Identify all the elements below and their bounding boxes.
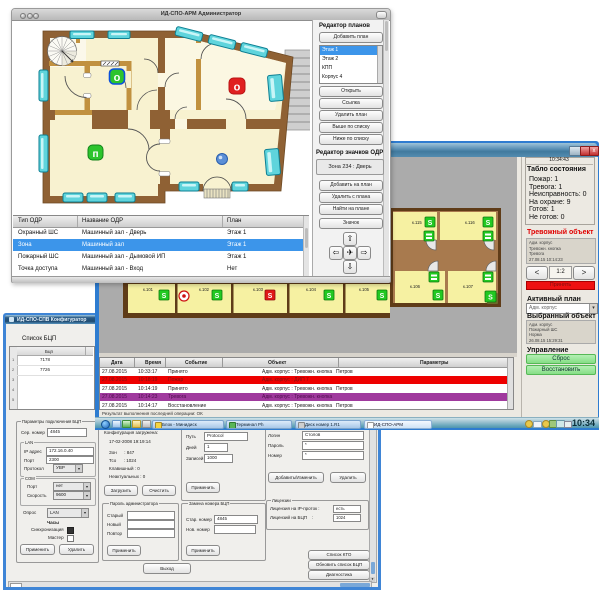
svg-text:S: S xyxy=(268,293,273,300)
svg-text:S: S xyxy=(162,293,167,300)
svg-text:S: S xyxy=(486,220,491,227)
svg-text:к.106: к.106 xyxy=(410,284,421,289)
svg-text:п: п xyxy=(92,149,98,160)
svg-text:S: S xyxy=(436,293,441,300)
svg-text:S: S xyxy=(327,293,332,300)
svg-text:S: S xyxy=(380,293,385,300)
svg-text:к.107: к.107 xyxy=(463,284,474,289)
svg-text:S: S xyxy=(488,295,493,302)
svg-text:к.116: к.116 xyxy=(465,220,475,225)
svg-text:к.105: к.105 xyxy=(359,287,370,292)
svg-text:к.102: к.102 xyxy=(199,287,210,292)
svg-text:к.104: к.104 xyxy=(306,287,317,292)
svg-text:o: o xyxy=(114,72,121,84)
svg-text:к.101: к.101 xyxy=(143,287,154,292)
svg-text:к.103: к.103 xyxy=(253,287,264,292)
svg-text:к.115: к.115 xyxy=(412,220,422,225)
svg-text:S: S xyxy=(428,220,433,227)
svg-text:S: S xyxy=(215,293,220,300)
svg-text:o: o xyxy=(234,82,241,94)
